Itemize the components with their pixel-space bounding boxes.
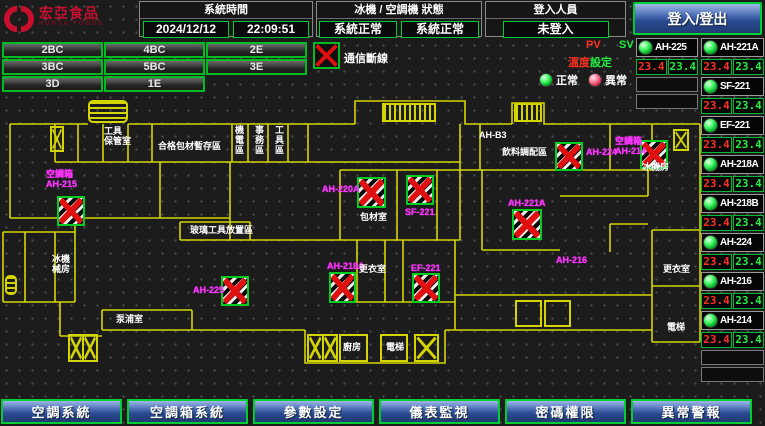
led-green-icon bbox=[703, 40, 718, 55]
zone-button-grid: 2BC 4BC 2E 3BC 5BC 3E 3D 1E bbox=[2, 42, 307, 92]
system-clock-value: 22:09:51 bbox=[233, 21, 309, 38]
monitor-unit-AH-214[interactable]: AH-214 bbox=[701, 311, 764, 330]
zone-button-5bc[interactable]: 5BC bbox=[104, 59, 205, 75]
monitor-values: 23.423.4 bbox=[636, 59, 698, 75]
monitor-unit-label: AH-218A bbox=[720, 159, 758, 170]
monitor-unit-label: EF-221 bbox=[720, 120, 750, 131]
room-label: 工 具 區 bbox=[275, 125, 284, 155]
system-date-value: 2024/12/12 bbox=[143, 21, 229, 38]
sv-value: 23.4 bbox=[733, 293, 764, 309]
equipment-label: AH-224 bbox=[586, 147, 617, 157]
equipment-label: AH-225 bbox=[193, 285, 224, 295]
room-label: 機 電 區 bbox=[235, 125, 244, 155]
room-label: AH-B3 bbox=[479, 130, 507, 140]
sv-value: 23.4 bbox=[733, 332, 764, 348]
monitor-values: 23.423.4 bbox=[701, 293, 764, 309]
zone-button-3bc[interactable]: 3BC bbox=[2, 59, 103, 75]
led-normal-icon bbox=[539, 73, 553, 87]
ahu-unit-marker[interactable] bbox=[329, 272, 356, 303]
hmi-screen: 空調箱 AH-215AH-225AH-220ASF-221AH-218AEF-2… bbox=[0, 0, 765, 426]
sv-header: SV bbox=[619, 39, 634, 51]
monitor-unit-label: AH-214 bbox=[720, 315, 751, 326]
equipment-label: SF-221 bbox=[405, 207, 435, 217]
led-green-icon bbox=[703, 274, 718, 289]
bottom-nav-bar: 空調系統 空調箱系統 參數設定 儀表監視 密碼權限 異常警報 bbox=[1, 399, 752, 424]
ahu-unit-marker[interactable] bbox=[221, 276, 249, 306]
monitor-empty-slot bbox=[636, 94, 698, 109]
chiller-status-value: 系統正常 bbox=[319, 21, 397, 38]
ahu-unit-marker[interactable] bbox=[357, 177, 386, 208]
monitor-unit-AH-218B[interactable]: AH-218B bbox=[701, 194, 764, 213]
nav-parameter-settings-button[interactable]: 參數設定 bbox=[253, 399, 374, 424]
room-label: 泵浦室 bbox=[116, 314, 143, 324]
monitor-values: 23.423.4 bbox=[701, 215, 764, 231]
room-cell bbox=[544, 300, 571, 327]
equipment-label: AH-221A bbox=[508, 198, 546, 208]
hunya-logo-icon bbox=[3, 4, 35, 34]
zone-button-2bc[interactable]: 2BC bbox=[2, 42, 103, 58]
ahu-unit-marker[interactable] bbox=[57, 196, 85, 226]
monitor-unit-label: AH-225 bbox=[655, 42, 686, 53]
zone-button-4bc[interactable]: 4BC bbox=[104, 42, 205, 58]
monitor-unit-EF-221[interactable]: EF-221 bbox=[701, 116, 764, 135]
monitor-unit-label: AH-216 bbox=[720, 276, 751, 287]
monitor-values: 23.423.4 bbox=[701, 332, 764, 348]
monitor-empty-slot bbox=[701, 350, 764, 365]
ac-status-value: 系統正常 bbox=[401, 21, 479, 38]
room-label: 冰機房 bbox=[642, 162, 669, 172]
stair-icon bbox=[307, 334, 338, 362]
nav-meter-monitor-button[interactable]: 儀表監視 bbox=[379, 399, 500, 424]
monitor-values: 23.423.4 bbox=[701, 137, 764, 153]
monitor-unit-AH-224[interactable]: AH-224 bbox=[701, 233, 764, 252]
monitor-values: 23.423.4 bbox=[701, 98, 764, 114]
monitor-empty-slot bbox=[701, 367, 764, 382]
room-label: 更衣室 bbox=[663, 264, 690, 274]
equipment-label: AH-216 bbox=[556, 255, 587, 265]
elevator-icon bbox=[50, 126, 64, 152]
pv-value: 23.4 bbox=[701, 254, 732, 270]
room-label: 冰機 械房 bbox=[52, 254, 70, 274]
pv-value: 23.4 bbox=[701, 332, 732, 348]
zone-button-3d[interactable]: 3D bbox=[2, 76, 103, 92]
pv-value: 23.4 bbox=[701, 98, 732, 114]
monitor-values: 23.423.4 bbox=[701, 176, 764, 192]
sv-value: 23.4 bbox=[733, 215, 764, 231]
room-label: 更衣室 bbox=[359, 264, 386, 274]
monitor-unit-AH-225[interactable]: AH-225 bbox=[636, 38, 698, 57]
room-label: 玻璃工具放置區 bbox=[190, 225, 253, 235]
legend-abnormal: 異常 bbox=[588, 72, 627, 88]
room-label: 電梯 bbox=[667, 322, 685, 332]
sv-value: 23.4 bbox=[733, 176, 764, 192]
hunya-logo: 宏亞食品 HUNYA FOODS bbox=[3, 2, 135, 36]
room-cell bbox=[380, 334, 408, 362]
led-green-icon bbox=[703, 235, 718, 250]
login-logout-button[interactable]: 登入/登出 bbox=[633, 2, 762, 35]
system-time-panel: 系統時間 2024/12/12 22:09:51 bbox=[139, 1, 313, 37]
nav-ahu-system-button[interactable]: 空調箱系統 bbox=[127, 399, 248, 424]
machine-status-panel: 冰機 / 空調機 狀態 系統正常 系統正常 bbox=[316, 1, 482, 37]
sv-value: 23.4 bbox=[733, 59, 764, 75]
nav-password-authority-button[interactable]: 密碼權限 bbox=[505, 399, 626, 424]
pv-header: PV bbox=[586, 39, 601, 51]
room-label: 事 務 區 bbox=[255, 125, 264, 155]
pv-value: 23.4 bbox=[636, 59, 667, 75]
monitor-empty-slot bbox=[636, 77, 698, 92]
monitor-values: 23.423.4 bbox=[701, 254, 764, 270]
stair-icon bbox=[88, 100, 128, 123]
zone-button-1e[interactable]: 1E bbox=[104, 76, 205, 92]
elevator-icon bbox=[414, 334, 439, 362]
pv-value: 23.4 bbox=[701, 59, 732, 75]
led-green-icon bbox=[703, 118, 718, 133]
pv-value: 23.4 bbox=[701, 176, 732, 192]
machine-status-title: 冰機 / 空調機 狀態 bbox=[317, 2, 481, 19]
login-panel: 登入人員 未登入 bbox=[485, 1, 626, 37]
stair-icon bbox=[68, 334, 98, 362]
ahu-unit-marker[interactable] bbox=[406, 175, 434, 205]
led-green-icon bbox=[703, 313, 718, 328]
monitor-unit-SF-221[interactable]: SF-221 bbox=[701, 77, 764, 96]
monitor-unit-AH-216[interactable]: AH-216 bbox=[701, 272, 764, 291]
sv-value: 23.4 bbox=[733, 98, 764, 114]
stair-icon bbox=[514, 103, 542, 122]
brand-name-en: HUNYA FOODS bbox=[39, 19, 105, 30]
comm-fail-x-icon bbox=[313, 42, 340, 69]
led-green-icon bbox=[638, 40, 653, 55]
ahu-unit-marker[interactable] bbox=[512, 209, 542, 240]
room-label: 合格包材暫存區 bbox=[158, 141, 221, 151]
sv-value: 23.4 bbox=[668, 59, 699, 75]
zone-button-3e[interactable]: 3E bbox=[206, 59, 307, 75]
login-status-value: 未登入 bbox=[503, 21, 609, 38]
room-cell bbox=[339, 334, 368, 362]
led-green-icon bbox=[703, 79, 718, 94]
pv-value: 23.4 bbox=[701, 137, 732, 153]
monitor-unit-label: AH-221A bbox=[720, 42, 758, 53]
room-label: 工具 保管室 bbox=[104, 126, 131, 146]
ahu-unit-marker[interactable] bbox=[412, 273, 440, 303]
nav-ac-system-button[interactable]: 空調系統 bbox=[1, 399, 122, 424]
room-cell bbox=[515, 300, 542, 327]
brand-name: 宏亞食品 bbox=[39, 8, 105, 19]
monitor-unit-label: AH-224 bbox=[720, 237, 751, 248]
zone-button-2e[interactable]: 2E bbox=[206, 42, 307, 58]
ahu-unit-marker[interactable] bbox=[555, 142, 583, 171]
pv-sv-caption: 溫度設定 bbox=[568, 54, 612, 70]
monitor-unit-label: AH-218B bbox=[720, 198, 758, 209]
equipment-label: EF-221 bbox=[411, 263, 441, 273]
stair-icon bbox=[5, 275, 17, 295]
room-label: 包材室 bbox=[360, 212, 387, 222]
login-title: 登入人員 bbox=[486, 2, 625, 19]
pv-value: 23.4 bbox=[701, 293, 732, 309]
monitor-column-right: AH-221A23.423.4SF-22123.423.4EF-22123.42… bbox=[701, 38, 764, 382]
comm-fail-label: 通信斷線 bbox=[344, 50, 388, 66]
monitor-unit-label: SF-221 bbox=[720, 81, 750, 92]
led-green-icon bbox=[703, 196, 718, 211]
elevator-icon bbox=[673, 129, 689, 151]
sv-value: 23.4 bbox=[733, 137, 764, 153]
monitor-unit-AH-221A[interactable]: AH-221A bbox=[701, 38, 764, 57]
sv-value: 23.4 bbox=[733, 254, 764, 270]
equipment-label: 空調箱 AH-215 bbox=[46, 169, 77, 189]
led-green-icon bbox=[703, 157, 718, 172]
monitor-values: 23.423.4 bbox=[701, 59, 764, 75]
equipment-label: 空調箱 AH-214 bbox=[615, 136, 646, 156]
system-time-title: 系統時間 bbox=[140, 2, 312, 19]
monitor-column-left: AH-22523.423.4 bbox=[636, 38, 698, 109]
pv-value: 23.4 bbox=[701, 215, 732, 231]
legend-normal: 正常 bbox=[539, 72, 578, 88]
stair-icon bbox=[382, 103, 436, 122]
nav-alarm-button[interactable]: 異常警報 bbox=[631, 399, 752, 424]
room-label: 飲料調配區 bbox=[502, 147, 547, 157]
equipment-label: AH-220A bbox=[322, 184, 360, 194]
monitor-unit-AH-218A[interactable]: AH-218A bbox=[701, 155, 764, 174]
led-abnormal-icon bbox=[588, 73, 602, 87]
